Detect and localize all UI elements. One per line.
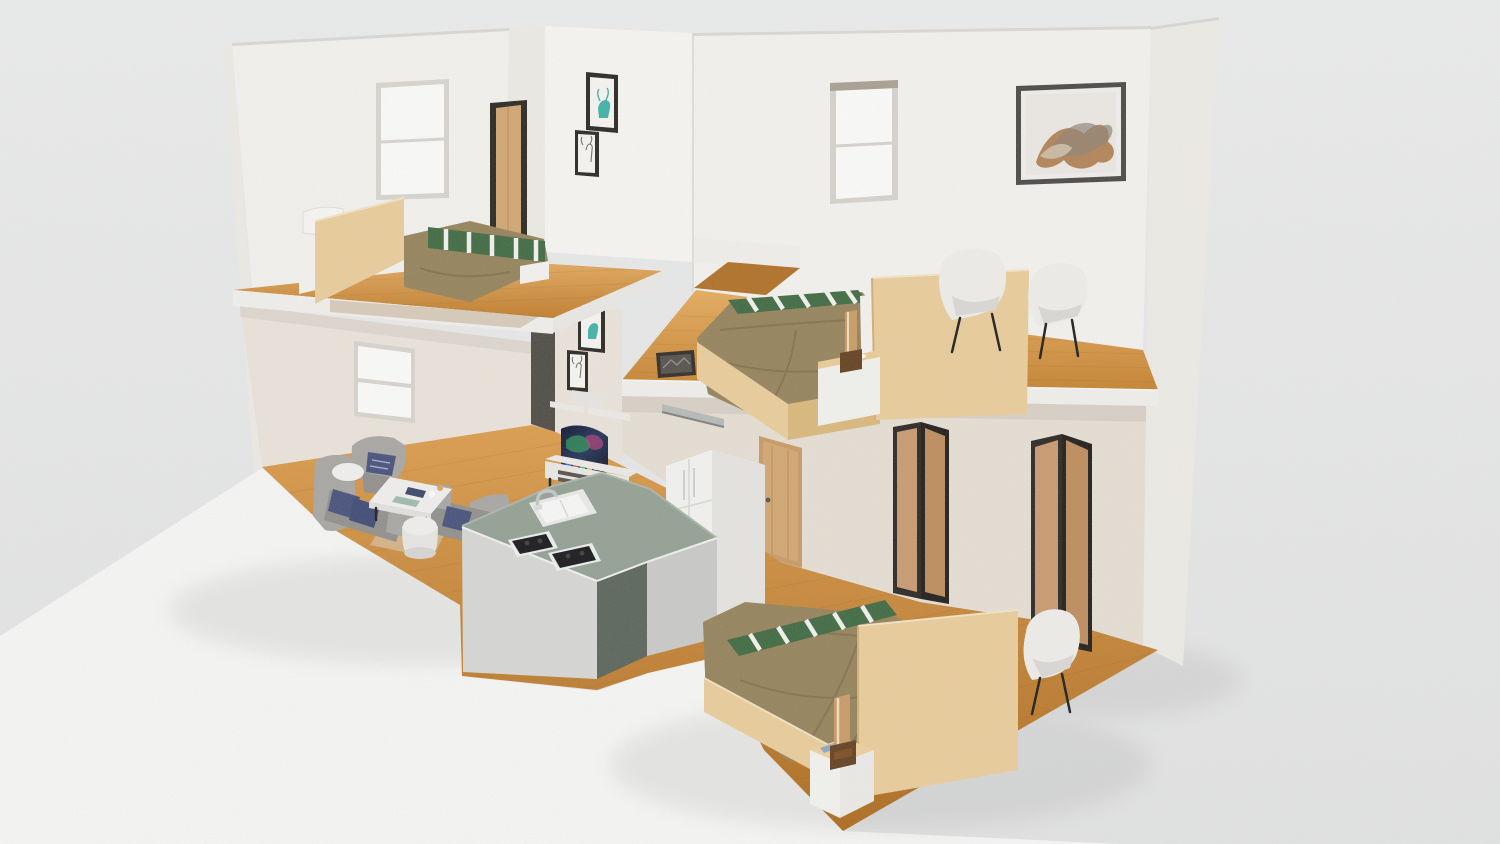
render-grain	[0, 0, 1500, 844]
apartment-render	[0, 0, 1500, 844]
apartment-render-canvas	[0, 0, 1500, 844]
